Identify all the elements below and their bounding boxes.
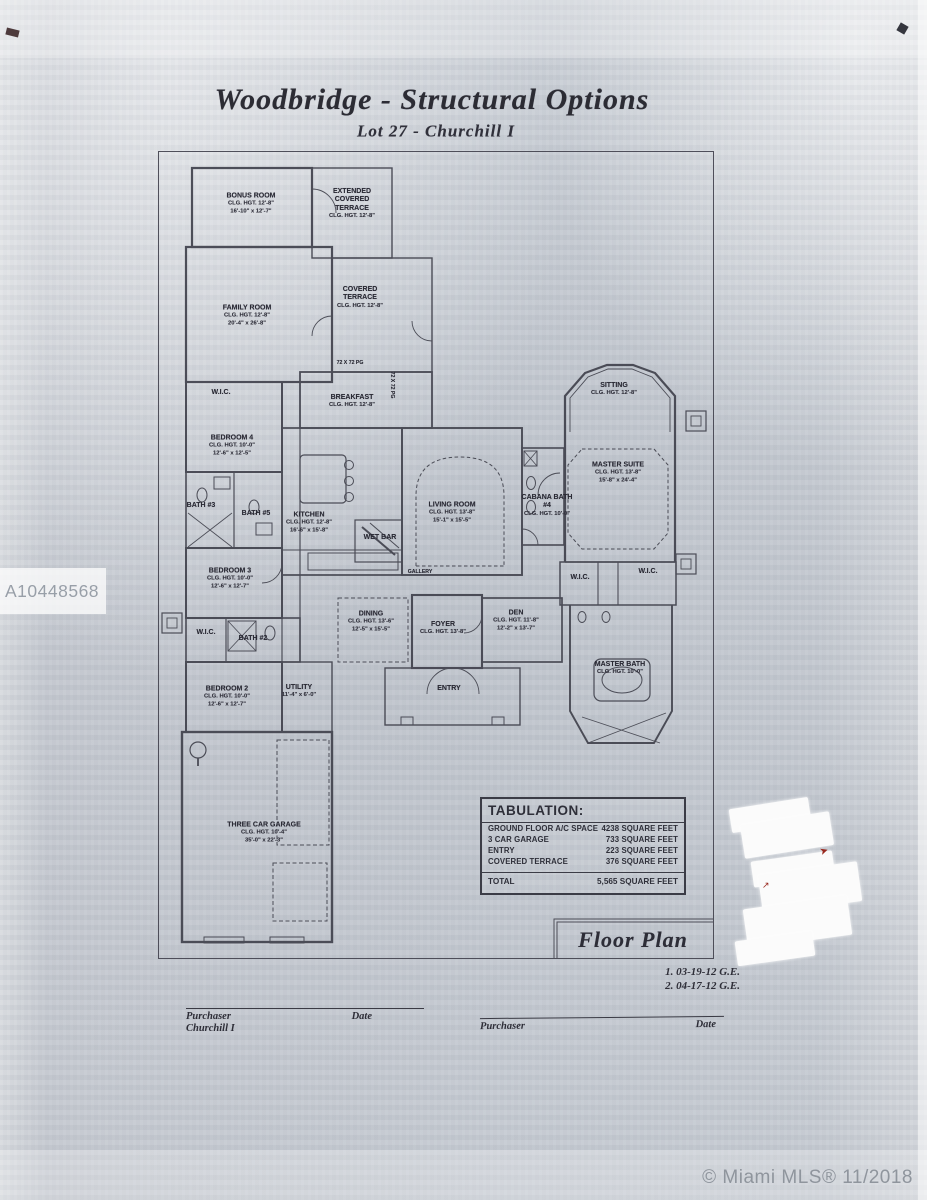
room-name: W.I.C. [196, 389, 246, 397]
page-title: Woodbridge - Structural Options [215, 85, 650, 115]
room-dims: 11'-4" x 6'-0" [271, 693, 327, 700]
room-label-covered-terrace: COVERED TERRACE CLG. HGT. 12'-8" [331, 286, 389, 310]
room-label-extended-covered-terrace: EXTENDED COVERED TERRACE CLG. HGT. 12'-8… [320, 188, 384, 220]
room-ceiling: CLG. HGT. 10'-4" [199, 830, 329, 837]
room-label-foyer: FOYER CLG. HGT. 13'-8" [403, 621, 483, 637]
room-name: W.I.C. [184, 629, 228, 637]
room-label-gallery: GALLERY [395, 569, 445, 575]
room-label-wic-bedroom3: W.I.C. [184, 629, 228, 637]
room-dims: 35'-0" x 22'-3" [199, 837, 329, 844]
room-label-entry: ENTRY [419, 685, 479, 693]
room-dims: 12'-6" x 12'-7" [185, 583, 275, 590]
room-ceiling: CLG. HGT. 12'-8" [569, 391, 659, 398]
room-label-bonus-room: BONUS ROOM CLG. HGT. 12'-8" 16'-10" x 12… [196, 193, 306, 216]
room-label-den: DEN CLG. HGT. 11'-8" 12'-2" x 13'-7" [476, 610, 556, 633]
model-name-label: Churchill I [186, 1022, 424, 1035]
room-name: CABANA BATH #4 [521, 494, 573, 511]
room-label-wet-bar: WET BAR [350, 534, 410, 542]
room-label-bath-3: BATH #3 [186, 502, 216, 510]
room-label-master-suite: MASTER SUITE CLG. HGT. 13'-8" 15'-8" x 2… [568, 462, 668, 485]
room-ceiling: CLG. HGT. 11'-8" [476, 618, 556, 625]
room-ceiling: CLG. HGT. 10'-0" [187, 443, 277, 450]
room-dims: 16'-10" x 12'-7" [196, 208, 306, 215]
signature-block-right: Purchaser Date [480, 1016, 724, 1033]
revision-entry: 1. 03-19-12 G.E. [628, 966, 740, 980]
room-ceiling: CLG. HGT. 10'-0" [182, 694, 272, 701]
room-label-dining: DINING CLG. HGT. 13'-6" 12'-5" x 15'-5" [331, 611, 411, 634]
tabulation-value: 223 SQUARE FEET [606, 845, 678, 856]
room-label-utility: UTILITY 11'-4" x 6'-0" [271, 684, 327, 700]
room-label-wic-family: W.I.C. [196, 389, 246, 397]
window-size-note: 72 X 72 PG [320, 360, 380, 366]
room-dims: 20'-4" x 26'-8" [187, 320, 307, 327]
room-name: W.I.C. [558, 574, 602, 582]
tabulation-total-label: TOTAL [488, 876, 515, 888]
room-ceiling: CLG. HGT. 12'-8" [307, 403, 397, 410]
room-label-three-car-garage: THREE CAR GARAGE CLG. HGT. 10'-4" 35'-0"… [199, 822, 329, 845]
room-name: GALLERY [395, 569, 445, 575]
page-subtitle: Lot 27 - Churchill I [357, 123, 515, 140]
room-label-cabana-bath-4: CABANA BATH #4 CLG. HGT. 10'-0" [521, 494, 573, 518]
room-name: BATH #3 [186, 502, 216, 510]
mls-copyright-stamp: © Miami MLS® 11/2018 [702, 1168, 913, 1187]
room-dims: 16'-6" x 15'-8" [269, 527, 349, 534]
tabulation-total-row: TOTAL 5,565 SQUARE FEET [482, 872, 684, 893]
room-dims: 15'-8" x 24'-4" [568, 477, 668, 484]
room-ceiling: CLG. HGT. 12'-8" [269, 520, 349, 527]
room-label-bath-5: BATH #5 [241, 510, 271, 518]
date-signature-label: Date [352, 1010, 372, 1023]
room-label-sitting: SITTING CLG. HGT. 12'-8" [569, 382, 659, 398]
room-label-bath-2: BATH #2 [238, 635, 268, 643]
tabulation-title: TABULATION: [482, 799, 684, 823]
room-ceiling: CLG. HGT. 10'-0" [521, 511, 573, 518]
room-ceiling: CLG. HGT. 13'-6" [331, 619, 411, 626]
purchaser-signature-label: Purchaser [480, 1020, 525, 1034]
room-ceiling: CLG. HGT. 10'-0" [185, 576, 275, 583]
tabulation-box: TABULATION: GROUND FLOOR A/C SPACE 4238 … [480, 797, 686, 895]
tabulation-label: GROUND FLOOR A/C SPACE [488, 823, 598, 834]
room-label-wic-master-left: W.I.C. [558, 574, 602, 582]
room-name: BATH #2 [238, 635, 268, 643]
room-label-bedroom-3: BEDROOM 3 CLG. HGT. 10'-0" 12'-6" x 12'-… [185, 568, 275, 591]
room-label-bedroom-2: BEDROOM 2 CLG. HGT. 10'-0" 12'-6" x 12'-… [182, 686, 272, 709]
tabulation-value: 376 SQUARE FEET [606, 856, 678, 867]
room-dims: 12'-6" x 12'-7" [182, 701, 272, 708]
room-dims: 12'-6" x 12'-5" [187, 450, 277, 457]
room-dims: 12'-5" x 15'-5" [331, 626, 411, 633]
red-pen-mark: ↗ [762, 881, 770, 891]
tabulation-row: ENTRY 223 SQUARE FEET [482, 845, 684, 856]
room-name: WET BAR [350, 534, 410, 542]
revision-list: 1. 03-19-12 G.E. 2. 04-17-12 G.E. [628, 966, 740, 994]
window-size-note-vertical: 72 X 72 PG [389, 355, 395, 415]
room-ceiling: CLG. HGT. 13'-8" [402, 510, 502, 517]
room-name: COVERED TERRACE [331, 286, 389, 303]
room-name: EXTENDED COVERED TERRACE [320, 188, 384, 213]
floor-plan-label: Floor Plan [578, 929, 688, 951]
room-label-wic-master-right: W.I.C. [626, 568, 670, 576]
date-signature-label: Date [696, 1018, 717, 1031]
room-ceiling: CLG. HGT. 12'-8" [331, 303, 389, 310]
tabulation-label: ENTRY [488, 845, 515, 856]
scanned-floor-plan-page: Woodbridge - Structural Options Lot 27 -… [0, 0, 927, 1200]
tabulation-value: 4238 SQUARE FEET [601, 823, 678, 834]
tabulation-label: COVERED TERRACE [488, 856, 568, 867]
room-name: ENTRY [419, 685, 479, 693]
tabulation-row: 3 CAR GARAGE 733 SQUARE FEET [482, 834, 684, 845]
tabulation-row: COVERED TERRACE 376 SQUARE FEET [482, 856, 684, 867]
room-label-breakfast: BREAKFAST CLG. HGT. 12'-8" [307, 394, 397, 410]
room-ceiling: CLG. HGT. 13'-8" [568, 470, 668, 477]
room-label-living-room: LIVING ROOM CLG. HGT. 13'-8" 15'-1" x 15… [402, 502, 502, 525]
tabulation-total-value: 5,565 SQUARE FEET [597, 876, 678, 888]
room-label-master-bath: MASTER BATH CLG. HGT. 10'-0" [575, 661, 665, 677]
room-dims: 12'-2" x 13'-7" [476, 625, 556, 632]
room-ceiling: CLG. HGT. 12'-8" [320, 213, 384, 220]
revision-entry: 2. 04-17-12 G.E. [628, 980, 740, 994]
scan-light-strip-right [918, 0, 927, 1200]
room-name: BATH #5 [241, 510, 271, 518]
room-ceiling: CLG. HGT. 12'-8" [196, 201, 306, 208]
room-label-bedroom-4: BEDROOM 4 CLG. HGT. 10'-0" 12'-6" x 12'-… [187, 435, 277, 458]
tabulation-value: 733 SQUARE FEET [606, 834, 678, 845]
signature-block-left: Purchaser Date Churchill I [186, 1008, 424, 1035]
room-ceiling: CLG. HGT. 10'-0" [575, 670, 665, 677]
room-ceiling: CLG. HGT. 12'-8" [187, 313, 307, 320]
room-ceiling: CLG. HGT. 13'-8" [403, 630, 483, 637]
room-label-kitchen: KITCHEN CLG. HGT. 12'-8" 16'-6" x 15'-8" [269, 512, 349, 535]
room-name: W.I.C. [626, 568, 670, 576]
tabulation-label: 3 CAR GARAGE [488, 834, 549, 845]
mls-id-watermark: A10448568 [5, 583, 99, 601]
room-label-family-room: FAMILY ROOM CLG. HGT. 12'-8" 20'-4" x 26… [187, 305, 307, 328]
room-dims: 15'-1" x 15'-5" [402, 517, 502, 524]
scan-light-strip-top [0, 0, 927, 58]
tabulation-row: GROUND FLOOR A/C SPACE 4238 SQUARE FEET [482, 823, 684, 834]
